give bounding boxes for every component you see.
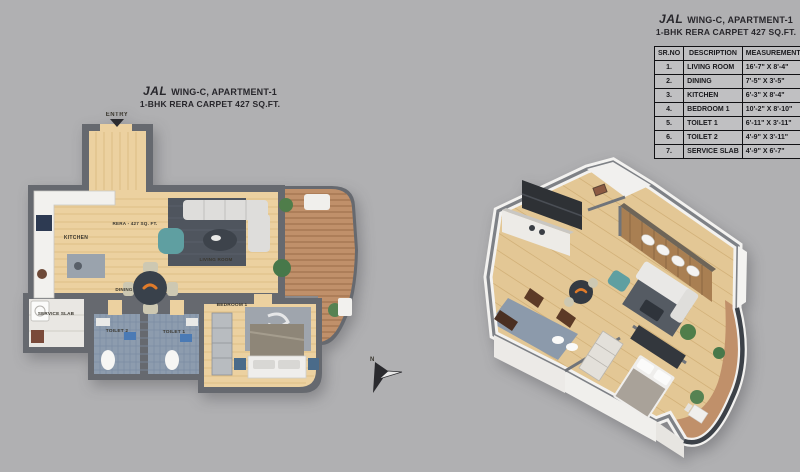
cell-srno: 3.	[655, 89, 684, 103]
dining-chair-3d	[564, 297, 574, 307]
plan2d-title-text: WING-C, APARTMENT-1	[171, 87, 277, 97]
deck-lounge-chair	[304, 194, 330, 210]
wc-3d	[552, 336, 564, 344]
dining-chair	[167, 282, 178, 296]
cell-description: BEDROOM 1	[684, 103, 743, 117]
plant-3d	[690, 390, 704, 404]
panel-title-line1: JALWING-C, APARTMENT-1	[652, 12, 800, 26]
toilet1-label: TOILET 1	[163, 329, 186, 335]
brand-logo: JAL	[659, 12, 683, 26]
table-row: 3.KITCHEN6'-3" X 8'-4"	[655, 89, 800, 103]
floorplan-3d	[470, 150, 780, 465]
hob-3d	[529, 225, 535, 231]
toilet2-wc	[101, 350, 115, 370]
teal-armchair	[158, 228, 184, 254]
plant-3d	[680, 324, 696, 340]
toilet2-label: TOILET 2	[106, 328, 129, 334]
plant-3d	[713, 347, 725, 359]
pillow	[253, 360, 275, 369]
pillow	[278, 360, 300, 369]
cell-description: KITCHEN	[684, 89, 743, 103]
cell-srno: 5.	[655, 117, 684, 131]
table-row: 5.TOILET 16'-11" X 3'-11"	[655, 117, 800, 131]
wall-face	[737, 246, 747, 308]
toilet1-door-gap	[170, 300, 184, 315]
nightstand	[234, 358, 246, 370]
header-measurement: MEASUREMENT	[742, 47, 800, 61]
dining-label: DINING	[115, 287, 133, 292]
toilet2-sink	[96, 318, 110, 326]
kitchen-hob	[74, 262, 82, 270]
kitchen-label: KITCHEN	[64, 235, 88, 241]
nightstand	[308, 358, 319, 370]
table-row: 4.BEDROOM 110'-2" X 8'-10"	[655, 103, 800, 117]
table-decor	[211, 235, 221, 241]
rera-label: RERA - 427 SQ. FT.	[112, 221, 157, 226]
cell-measurement: 7'-5" X 3'-5"	[742, 75, 800, 89]
toilet2-door-gap	[108, 300, 122, 315]
cell-srno: 6.	[655, 131, 684, 145]
brochure-page: JALWING-C, APARTMENT-1 1-BHK RERA CARPET…	[0, 0, 800, 472]
dining-chair-3d	[588, 278, 598, 288]
north-label: N	[370, 357, 374, 363]
table-row: 1.LIVING ROOM16'-7" X 8'-4"	[655, 61, 800, 75]
panel-subtitle: 1-BHK RERA CARPET 427 SQ.FT.	[652, 27, 800, 37]
cell-srno: 4.	[655, 103, 684, 117]
cell-measurement: 10'-2" X 8'-10"	[742, 103, 800, 117]
hob-3d	[539, 229, 545, 235]
cell-measurement: 6'-11" X 3'-11"	[742, 117, 800, 131]
toilet1-mat	[180, 334, 192, 342]
toilet-divider-wall	[140, 314, 148, 374]
floorplan-2d: ENTRY KITCHEN RERA - 427 SQ. FT. LIVING …	[20, 102, 365, 432]
entry-label: ENTRY	[106, 112, 129, 118]
kitchen-sink	[37, 269, 47, 279]
header-description: DESCRIPTION	[684, 47, 743, 61]
sofa-right	[248, 214, 270, 252]
dining-table	[133, 271, 167, 305]
cell-description: TOILET 1	[684, 117, 743, 131]
toilet1-sink	[186, 318, 198, 326]
table-header-row: SR.NO DESCRIPTION MEASUREMENT	[655, 47, 800, 61]
kitchen-island	[67, 254, 105, 278]
service-slab-label: SERVICE SLAB	[38, 311, 75, 316]
panel-title-text: WING-C, APARTMENT-1	[687, 15, 793, 25]
coffee-table	[203, 229, 237, 251]
cell-measurement: 4'-9" X 3'-11"	[742, 131, 800, 145]
plant	[273, 259, 291, 277]
cell-srno: 1.	[655, 61, 684, 75]
cell-srno: 2.	[655, 75, 684, 89]
living-room-label: LIVING ROOM	[199, 257, 232, 262]
wardrobe	[212, 313, 232, 375]
table-row: 2.DINING7'-5" X 3'-5"	[655, 75, 800, 89]
kitchen-fridge	[36, 215, 52, 231]
north-arrow: N	[358, 348, 408, 400]
panel-title: JALWING-C, APARTMENT-1 1-BHK RERA CARPET…	[652, 12, 800, 37]
bedroom1-label: BEDROOM 1	[217, 302, 248, 308]
bedroom-door-gap	[254, 294, 272, 306]
cell-description: DINING	[684, 75, 743, 89]
toilet1-wc	[165, 350, 179, 370]
cell-description: LIVING ROOM	[684, 61, 743, 75]
brand-logo: JAL	[143, 84, 167, 98]
deck-planter	[338, 298, 352, 316]
service-shelf	[31, 330, 44, 343]
plan2d-title-line1: JALWING-C, APARTMENT-1	[105, 84, 315, 98]
table-row: 6.TOILET 24'-9" X 3'-11"	[655, 131, 800, 145]
measurement-table: SR.NO DESCRIPTION MEASUREMENT 1.LIVING R…	[654, 46, 800, 159]
header-srno: SR.NO	[655, 47, 684, 61]
wc-3d	[566, 343, 578, 351]
cell-measurement: 6'-3" X 8'-4"	[742, 89, 800, 103]
cell-description: TOILET 2	[684, 131, 743, 145]
plant	[279, 198, 293, 212]
cell-measurement: 16'-7" X 8'-4"	[742, 61, 800, 75]
